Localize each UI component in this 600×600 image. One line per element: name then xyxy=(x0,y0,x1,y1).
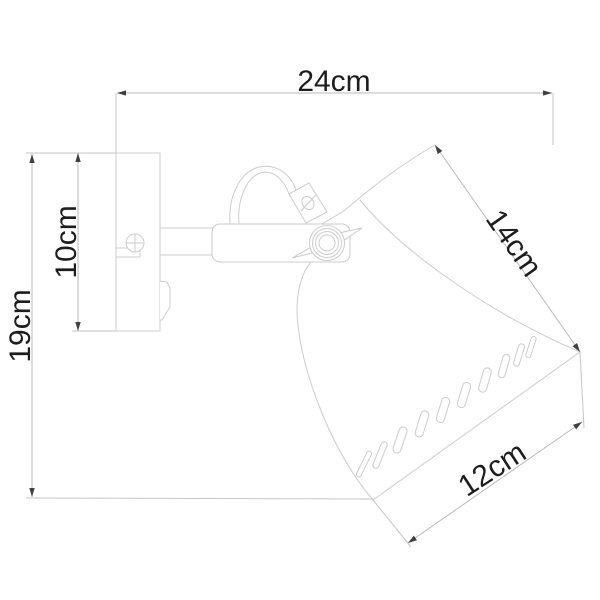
arrowhead xyxy=(117,90,126,95)
arrowhead xyxy=(75,322,80,331)
shade-top-edge xyxy=(344,145,435,211)
vent-slot xyxy=(372,441,388,469)
lamp-shade xyxy=(297,145,580,500)
arrowhead xyxy=(543,90,552,95)
arrowhead xyxy=(29,488,34,497)
arrowhead xyxy=(408,536,417,543)
dimension-labels: 24cm 19cm 10cm 14cm 12cm xyxy=(4,65,548,503)
drawing-canvas: 24cm 19cm 10cm 14cm 12cm xyxy=(0,0,600,600)
extension-shade-rim-bottom xyxy=(373,500,411,547)
vent-slot xyxy=(435,396,450,423)
cable-inner-curve xyxy=(239,172,290,224)
vent-slot xyxy=(392,426,408,454)
arm xyxy=(160,228,213,255)
vent-slot xyxy=(456,381,471,408)
arrowhead xyxy=(435,145,442,154)
cable-connector xyxy=(289,183,327,223)
shade-front-edge xyxy=(360,200,580,352)
mounting-screw-icon xyxy=(126,234,144,252)
dim-label-shade-slant: 14cm xyxy=(479,204,548,283)
vent-slot xyxy=(356,450,373,477)
vent-slot xyxy=(478,367,493,393)
extension-bottom xyxy=(26,498,373,499)
cable-outer-curve xyxy=(230,166,297,224)
dim-label-backplate-height: 10cm xyxy=(50,205,83,278)
wall-plate xyxy=(116,153,170,331)
lamp-technical-drawing: 24cm 19cm 10cm 14cm 12cm xyxy=(0,0,600,600)
arrowhead xyxy=(75,153,80,162)
arrowhead xyxy=(29,154,34,163)
vent-slot xyxy=(525,336,537,358)
vent-slot xyxy=(513,343,525,367)
vent-slot xyxy=(497,354,510,379)
power-switch xyxy=(160,281,170,320)
vent-slot xyxy=(414,410,430,438)
dim-label-overall-width: 24cm xyxy=(297,65,370,98)
extension-shade-rim-top xyxy=(580,352,584,428)
arrowhead xyxy=(573,422,582,429)
dim-label-overall-height: 19cm xyxy=(4,289,37,362)
knob-center xyxy=(319,235,335,251)
dim-label-shade-opening: 12cm xyxy=(453,436,532,504)
power-cable xyxy=(230,166,297,224)
